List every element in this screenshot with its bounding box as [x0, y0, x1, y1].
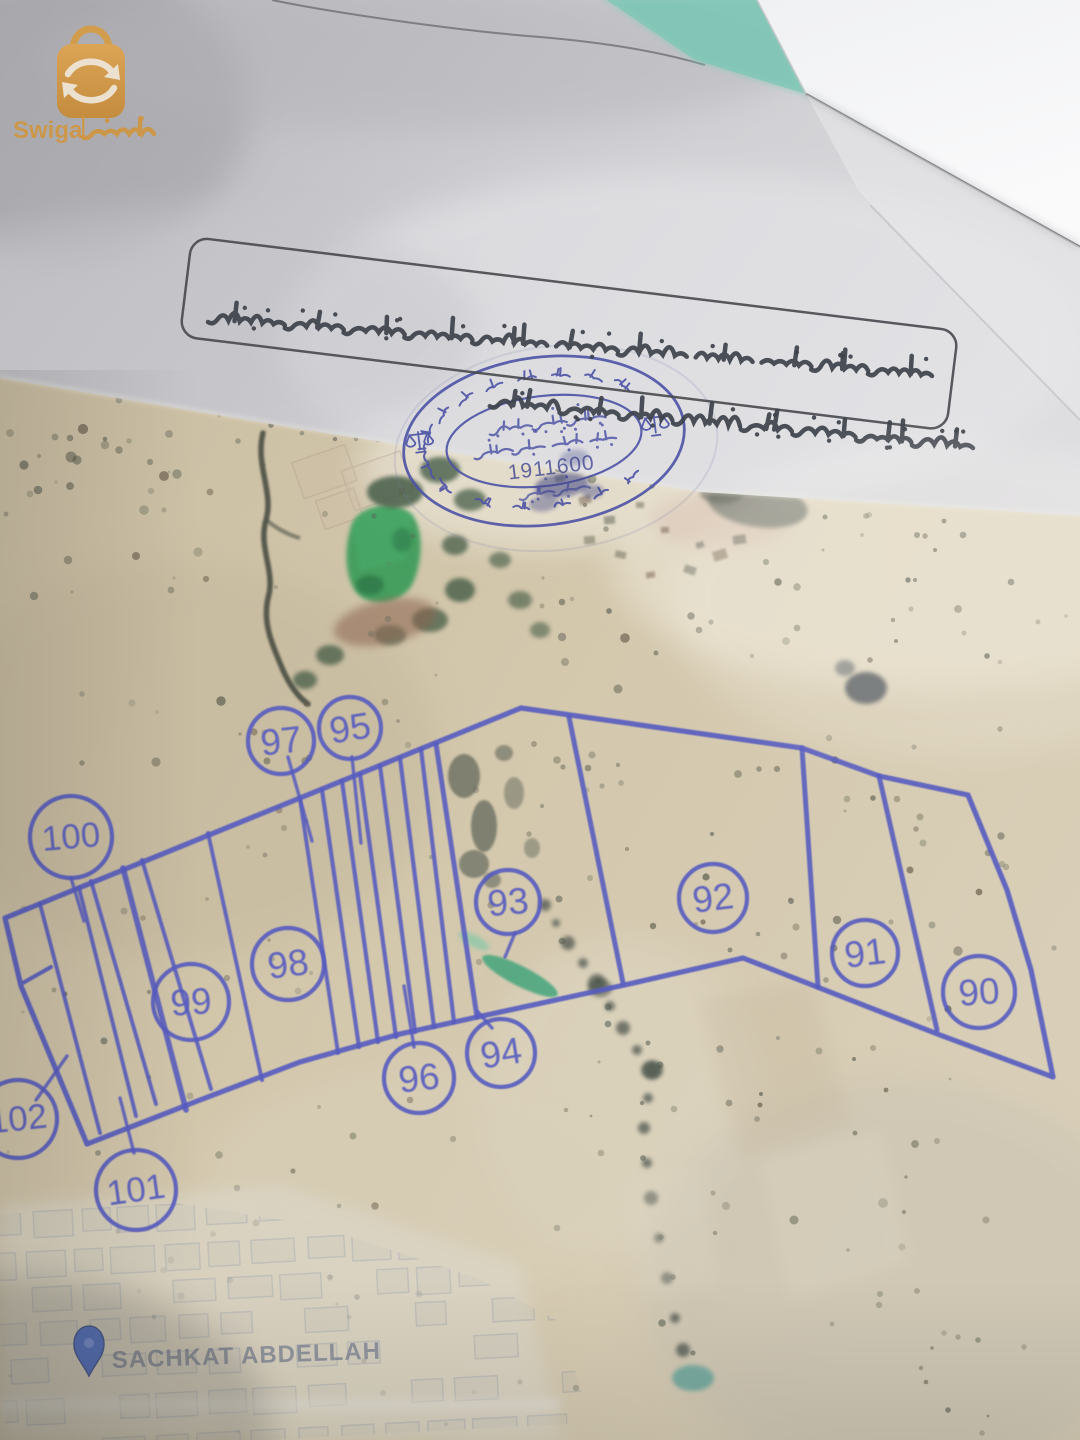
svg-text:92: 92 [690, 875, 736, 921]
svg-text:97: 97 [258, 718, 303, 763]
svg-text:98: 98 [265, 941, 311, 987]
svg-text:91: 91 [842, 930, 888, 976]
svg-text:95: 95 [326, 705, 373, 752]
svg-text:96: 96 [396, 1055, 441, 1100]
svg-text:90: 90 [957, 970, 1001, 1014]
svg-text:Swiga: Swiga [13, 117, 83, 144]
svg-text:93: 93 [486, 880, 531, 924]
svg-text:94: 94 [477, 1030, 524, 1077]
